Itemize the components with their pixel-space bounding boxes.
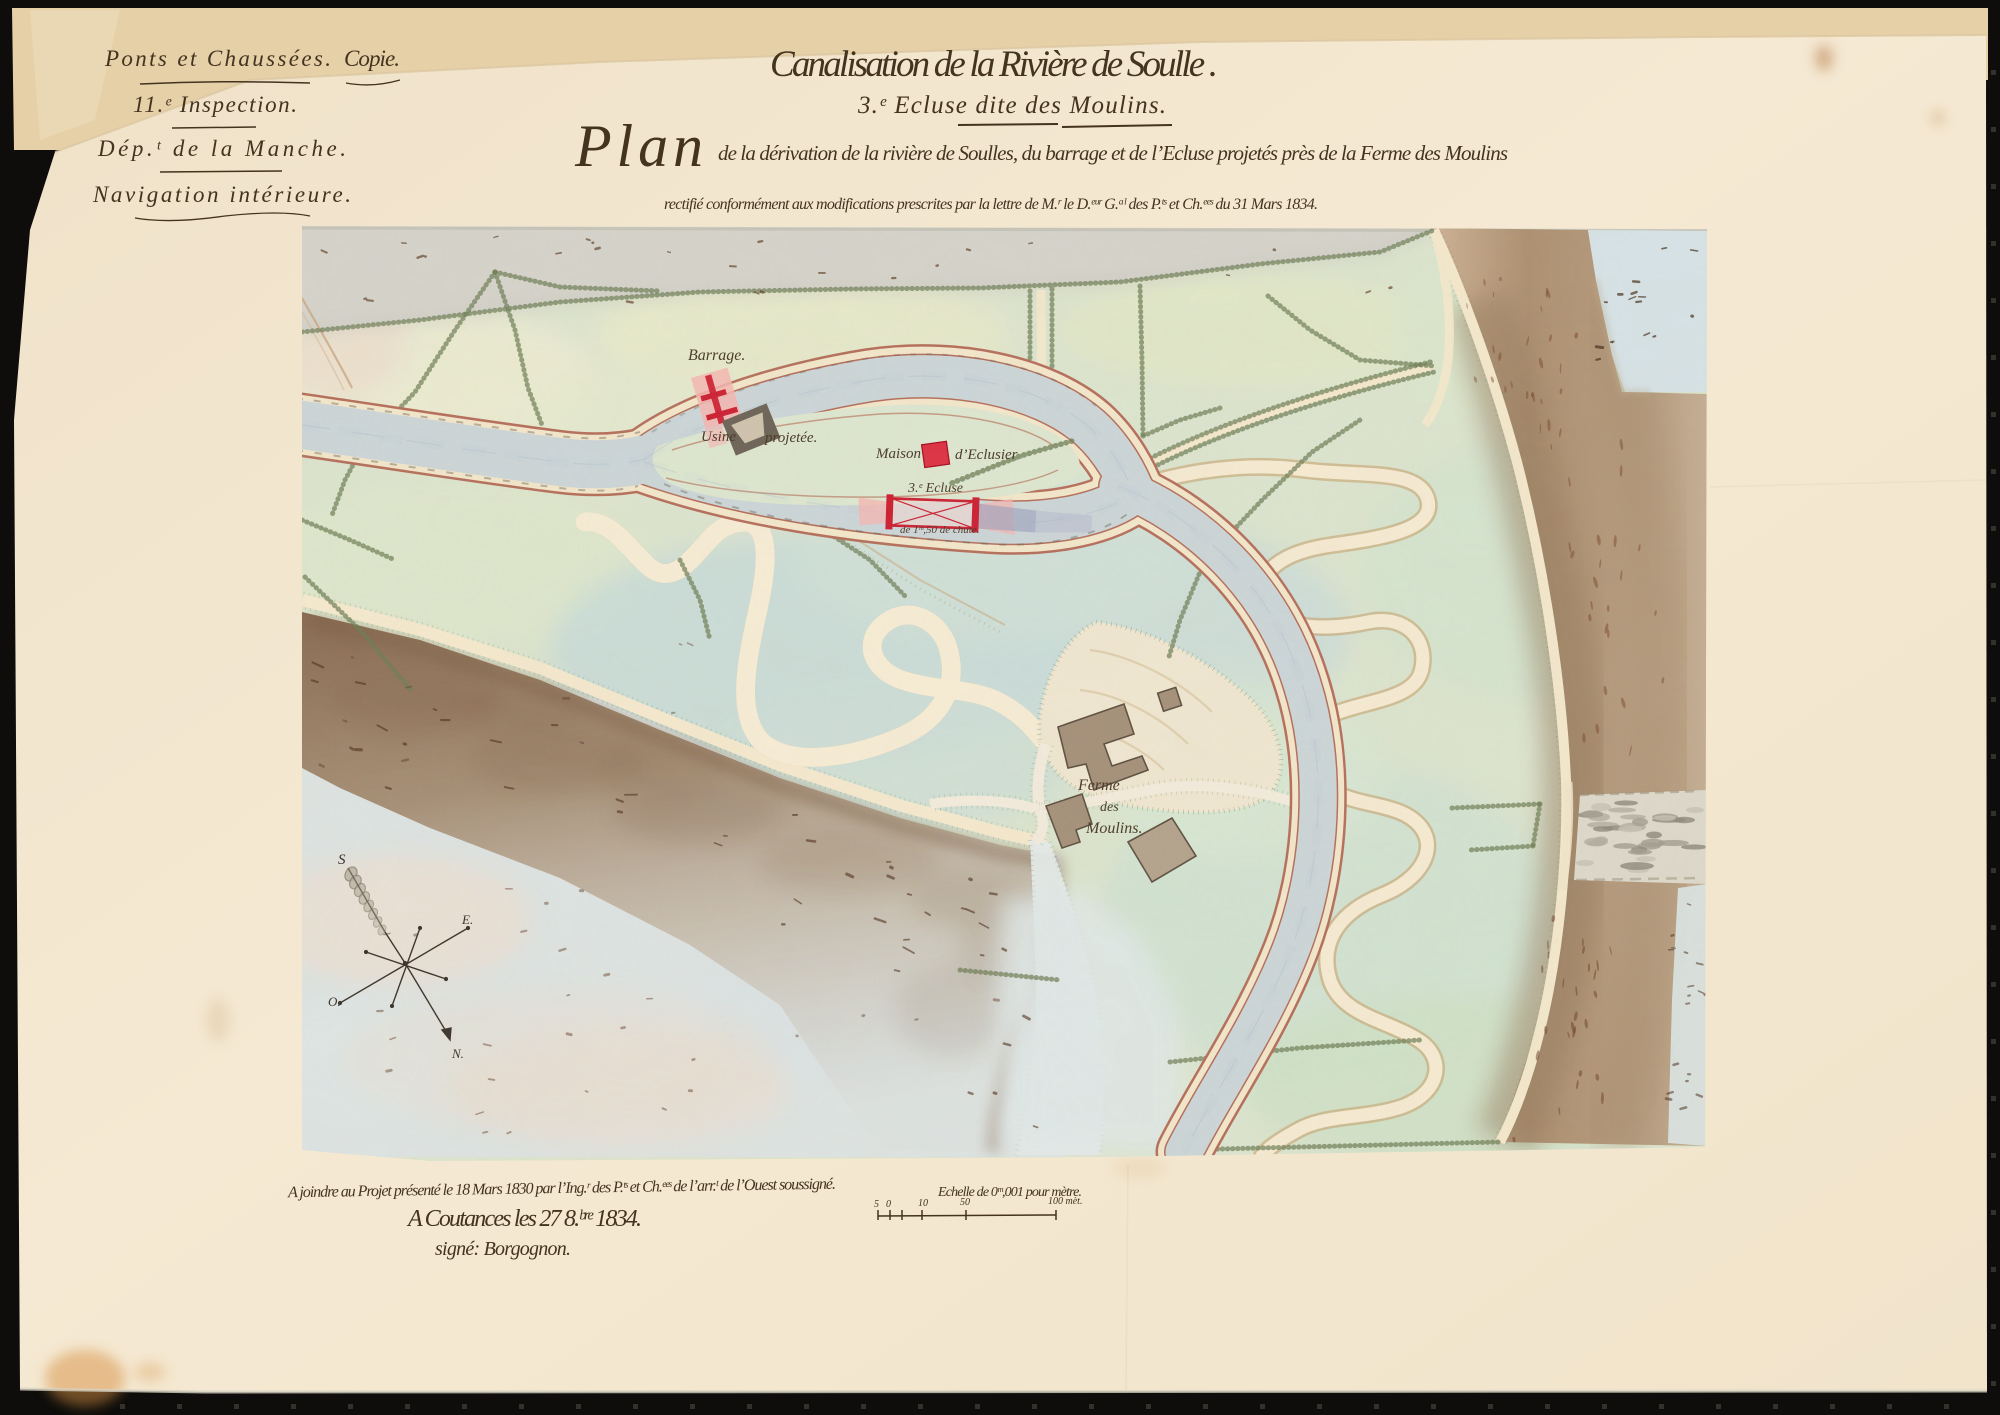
svg-text:10: 10 (918, 1198, 928, 1209)
svg-text:100 mèt.: 100 mèt. (1048, 1196, 1082, 1207)
svg-text:Ponts et Chaussées.: Ponts et Chaussées. (104, 46, 331, 71)
svg-text:A Coutances les 27 8.ᵇʳᵉ 1834: A Coutances les 27 8.ᵇʳᵉ 1834. (406, 1206, 642, 1232)
svg-text:Canalisation de la Rivière de: Canalisation de la Rivière de Soulle . (770, 44, 1218, 85)
svg-text:11.ᵉ Inspection.: 11.ᵉ Inspection. (133, 92, 297, 117)
svg-text:signé: Borgognon.: signé: Borgognon. (435, 1238, 571, 1260)
svg-text:3.ᵉ Ecluse dite des Moulins.: 3.ᵉ Ecluse dite des Moulins. (857, 92, 1166, 119)
svg-text:5: 5 (874, 1199, 879, 1210)
svg-text:de la dérivation de la rivière: de la dérivation de la rivière de Soulle… (718, 141, 1508, 165)
svg-text:Navigation intérieure.: Navigation intérieure. (92, 182, 351, 207)
svg-text:0: 0 (886, 1199, 891, 1210)
svg-text:Copie.: Copie. (344, 46, 400, 71)
svg-text:rectifié conformément aux modi: rectifié conformément aux modifications … (664, 196, 1318, 213)
svg-text:50: 50 (960, 1197, 970, 1208)
svg-text:Plan: Plan (574, 113, 703, 179)
